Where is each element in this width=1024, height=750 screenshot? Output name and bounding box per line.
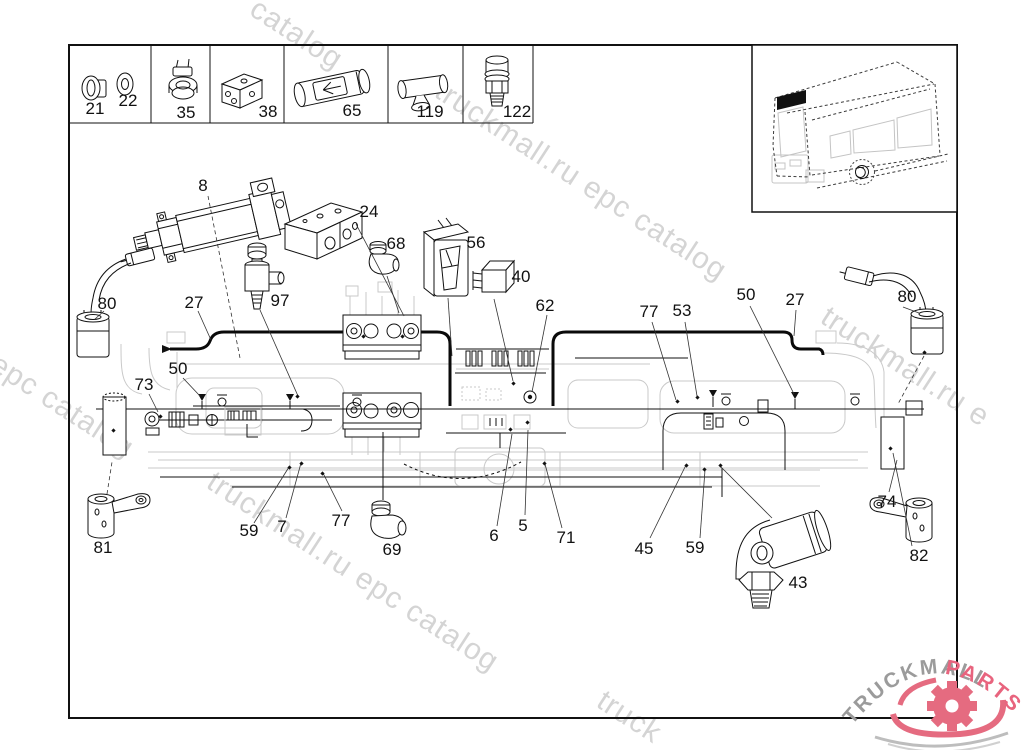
leader-50-left [183,378,200,396]
leader-68 [387,276,399,313]
legend-plug-21-icon [82,76,106,100]
assembly-underlay [121,282,884,486]
part-82-lever [870,498,932,542]
part-80-cable-right [838,265,943,354]
legend-sleeve-65-icon [292,68,371,107]
parts-diagram-page: catalogtruckmall.ru epc catalogtruckmall… [0,0,1024,750]
leader-7 [286,463,301,518]
part-56-switch [424,218,468,296]
center-manifold [343,315,566,437]
leader-97 [260,310,298,396]
part-81-lever [88,494,150,538]
legend-washer-22-icon [117,73,133,95]
part-43-elbow-fitting [736,509,834,608]
part-74-bracket-plate [881,417,904,469]
part-97-valve [245,243,284,309]
leader-43 [720,466,772,518]
leader-71 [545,464,562,528]
leader-80-right-2 [898,356,924,404]
leader-27-right [794,310,796,336]
leader-27-left [198,311,211,340]
part-69-elbow [371,501,406,538]
truckmall-parts-logo: TRUCKMALL PARTS [839,655,1024,750]
leader-77-left [323,473,342,511]
legend-tee-119-icon [397,74,451,113]
legend-block-38-icon [222,74,262,108]
part-73-bracket-plate [103,393,126,455]
leader-lines [95,196,924,546]
leader-81 [107,462,112,494]
logo-gear-icon [927,681,977,731]
legend-fitting-122-icon [485,56,509,106]
part-80-cable-left [77,248,155,357]
leader-45 [650,465,686,538]
part-24-block [285,203,362,259]
leader-77-right [652,322,676,400]
leader-5 [525,430,528,515]
leader-59-left [254,467,289,523]
legend-part-icons [82,56,509,113]
part-40-relay [473,261,514,292]
legend-switch-35-icon [169,59,197,99]
diagram-line-art: TRUCKMALL PARTS [0,0,1024,750]
leader-59-right [700,470,705,538]
